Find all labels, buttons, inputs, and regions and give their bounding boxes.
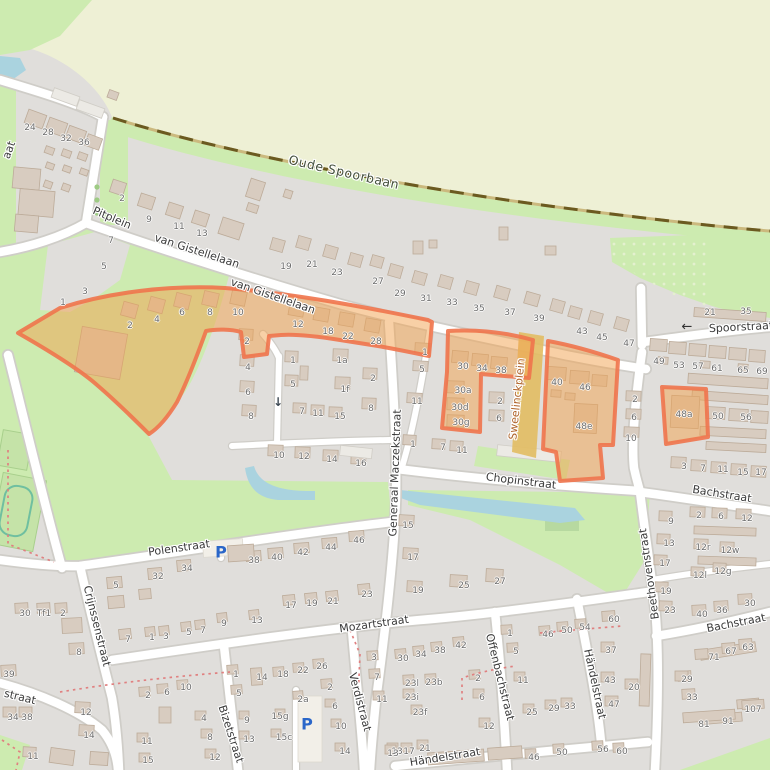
- street-label: Chopinstraat: [485, 470, 557, 492]
- house-number: 11: [717, 465, 728, 475]
- house-number: 12: [483, 722, 494, 732]
- parking-icon: P: [215, 543, 227, 562]
- house-number: 2: [244, 337, 250, 347]
- house-number: 35: [473, 304, 484, 314]
- house-number: 12: [209, 753, 220, 763]
- house-number: 47: [608, 700, 619, 710]
- house-number: 22: [297, 666, 308, 676]
- house-number: 12l: [693, 571, 707, 581]
- house-number: 25: [458, 581, 469, 591]
- house-number: 13: [243, 735, 254, 745]
- house-number: 23l: [405, 679, 419, 689]
- house-number: 15: [402, 521, 413, 531]
- house-number: 67: [725, 647, 736, 657]
- house-number: 38: [434, 646, 445, 656]
- house-number: 2: [327, 683, 333, 693]
- house-number: 17: [659, 559, 670, 569]
- house-number: 30: [744, 599, 755, 609]
- house-number: 36: [716, 606, 727, 616]
- house-number: 50: [712, 412, 723, 422]
- house-number: 20: [628, 683, 639, 693]
- house-number: 13: [251, 616, 262, 626]
- house-number: 7: [108, 236, 114, 246]
- house-number: 23: [664, 606, 675, 616]
- house-number: 39: [533, 314, 544, 324]
- street-label: Beethovenstraat: [636, 528, 662, 621]
- house-number: 10: [180, 683, 191, 693]
- house-number: 65: [737, 366, 748, 376]
- house-number: 11: [376, 695, 387, 705]
- house-number: 13: [196, 229, 207, 239]
- house-number: 19: [660, 587, 671, 597]
- house-number: 8: [207, 733, 213, 743]
- house-number: 12r: [695, 543, 710, 553]
- house-number: 46: [579, 383, 590, 393]
- house-number: 37: [605, 646, 616, 656]
- house-number: 12w: [721, 546, 740, 556]
- house-number: 30: [19, 609, 30, 619]
- house-number: 5: [290, 380, 296, 390]
- house-number: 35: [740, 307, 751, 317]
- house-number: 30: [457, 362, 468, 372]
- map-label-layer: Oude SpoorbaanPitpleinvan Gistellelaanva…: [0, 0, 770, 770]
- house-number: 22: [342, 332, 353, 342]
- house-number: 11: [312, 409, 323, 419]
- house-number: 11: [517, 676, 528, 686]
- house-number: 27: [494, 577, 505, 587]
- house-number: 33: [564, 702, 575, 712]
- street-label: Bachstraat: [692, 483, 753, 505]
- house-number: 39: [3, 670, 14, 680]
- house-number: 19: [280, 262, 291, 272]
- street-label: Oude Spoorbaan: [287, 152, 401, 192]
- house-number: 12: [741, 514, 752, 524]
- house-number: 42: [297, 548, 308, 558]
- house-number: 17: [285, 601, 296, 611]
- house-number: 46: [542, 630, 553, 640]
- house-number: 2: [370, 374, 376, 384]
- house-number: 11: [411, 397, 422, 407]
- house-number: 2: [119, 194, 125, 204]
- house-number: 21: [306, 260, 317, 270]
- house-number: 1: [410, 440, 416, 450]
- house-number: 11: [27, 752, 38, 762]
- street-label: Sweelinckplein: [506, 358, 527, 441]
- house-number: 12: [80, 708, 91, 718]
- house-number: 10: [625, 434, 636, 444]
- house-number: 16: [355, 459, 366, 469]
- house-number: 40: [271, 553, 282, 563]
- house-number: 63: [742, 643, 753, 653]
- house-number: 4: [154, 315, 160, 325]
- house-number: 17: [755, 468, 766, 478]
- house-number: 12: [292, 320, 303, 330]
- house-number: 29: [548, 704, 559, 714]
- house-number: 17: [403, 747, 414, 757]
- oneway-down-icon: ↓: [273, 395, 283, 409]
- house-number: 1: [60, 298, 66, 308]
- house-number: 38: [495, 366, 506, 376]
- house-number: 91: [722, 717, 733, 727]
- street-label: Pitplein: [91, 204, 133, 232]
- house-number: 29: [681, 675, 692, 685]
- street-label: aat: [0, 139, 18, 160]
- house-number: 2a: [297, 695, 308, 705]
- house-number: 15: [334, 412, 345, 422]
- house-number: 10: [232, 308, 243, 318]
- house-number: 3: [681, 462, 687, 472]
- house-number: 23f: [413, 708, 428, 718]
- house-number: 11: [456, 446, 467, 456]
- house-number: 29: [394, 289, 405, 299]
- street-label: Crijnssenstraat: [81, 584, 114, 668]
- house-number: 2: [60, 609, 66, 619]
- house-number: 6: [245, 388, 251, 398]
- house-number: 40: [696, 610, 707, 620]
- house-number: 14: [256, 673, 267, 683]
- house-number: 15: [737, 468, 748, 478]
- house-number: 19: [412, 586, 423, 596]
- house-number: 5: [101, 262, 107, 272]
- street-label: straat: [3, 687, 38, 707]
- house-number: 46: [353, 536, 364, 546]
- house-number: 6: [332, 702, 338, 712]
- house-number: Tf1: [37, 609, 51, 619]
- house-number: 19: [306, 599, 317, 609]
- house-number: 1: [422, 348, 428, 358]
- house-number: 81: [698, 720, 709, 730]
- house-number: 3: [371, 653, 377, 663]
- house-number: 53: [673, 361, 684, 371]
- street-label: Generaal Maczekstraat: [386, 409, 403, 537]
- house-number: 10: [335, 722, 346, 732]
- house-number: 107: [744, 705, 761, 715]
- house-number: 18: [322, 327, 333, 337]
- house-number: 56: [740, 413, 751, 423]
- house-number: 4: [201, 714, 207, 724]
- house-number: 1f: [341, 385, 350, 395]
- house-number: 1: [149, 633, 155, 643]
- house-number: 5: [113, 581, 119, 591]
- house-number: 24: [24, 123, 35, 133]
- house-number: 6: [164, 688, 170, 698]
- house-number: 30d: [451, 403, 468, 413]
- house-number: 34: [7, 713, 18, 723]
- house-number: 50: [556, 748, 567, 758]
- house-number: 46: [528, 753, 539, 763]
- house-number: 11: [173, 222, 184, 232]
- house-number: 17: [407, 553, 418, 563]
- house-number: 31: [420, 294, 431, 304]
- street-label: Polenstraat: [147, 537, 210, 559]
- house-number: 6: [718, 512, 724, 522]
- house-number: 3: [82, 287, 88, 297]
- house-number: 26: [316, 662, 327, 672]
- street-label: Verdistraat: [346, 671, 374, 732]
- house-number: 15g: [271, 712, 288, 722]
- house-number: 50: [561, 626, 572, 636]
- street-label: Mozartstraat: [338, 613, 409, 636]
- house-number: 1: [233, 670, 239, 680]
- house-number: 42: [455, 641, 466, 651]
- house-number: 47: [623, 339, 634, 349]
- house-number: 7: [200, 626, 206, 636]
- house-number: 7: [299, 407, 305, 417]
- house-number: 4: [245, 363, 251, 373]
- house-number: 38: [248, 556, 259, 566]
- house-number: 23: [331, 268, 342, 278]
- house-number: 9: [244, 716, 250, 726]
- house-number: 6: [179, 308, 185, 318]
- house-number: 7: [440, 443, 446, 453]
- house-number: 71: [708, 653, 719, 663]
- house-number: 5: [186, 628, 192, 638]
- house-number: 1: [507, 629, 513, 639]
- house-number: 34: [181, 564, 192, 574]
- house-number: 21: [704, 308, 715, 318]
- house-number: 14: [83, 731, 94, 741]
- house-number: 15: [142, 756, 153, 766]
- house-number: 28: [370, 337, 381, 347]
- house-number: 6: [479, 693, 485, 703]
- house-number: 12: [298, 452, 309, 462]
- house-number: 5: [236, 689, 242, 699]
- house-number: 5: [513, 647, 519, 657]
- house-number: 21: [419, 744, 430, 754]
- house-number: 13: [663, 539, 674, 549]
- house-number: 2: [696, 511, 702, 521]
- house-number: 6: [631, 413, 637, 423]
- house-number: 2: [127, 321, 133, 331]
- house-number: 7: [125, 635, 131, 645]
- oneway-left-icon: ←: [682, 320, 693, 335]
- house-number: 60: [616, 747, 627, 757]
- house-number: 28: [42, 128, 53, 138]
- house-number: 48a: [676, 410, 693, 420]
- house-number: 21: [327, 597, 338, 607]
- house-number: 1: [290, 356, 296, 366]
- house-number: 30a: [455, 386, 472, 396]
- house-number: 40: [551, 378, 562, 388]
- house-number: 2: [497, 397, 503, 407]
- house-number: 1a: [336, 356, 347, 366]
- house-number: 23b: [425, 678, 442, 688]
- house-number: 2: [145, 691, 151, 701]
- house-number: 49: [653, 357, 664, 367]
- house-number: 14: [339, 747, 350, 757]
- house-number: 69: [756, 367, 767, 377]
- house-number: 13: [387, 749, 398, 759]
- house-number: 32: [152, 572, 163, 582]
- house-number: 57: [692, 362, 703, 372]
- house-number: 9: [221, 619, 227, 629]
- house-number: 23i: [405, 693, 419, 703]
- house-number: 9: [146, 215, 152, 225]
- house-number: 23: [361, 590, 372, 600]
- house-number: 54: [579, 623, 590, 633]
- house-number: 2: [475, 674, 481, 684]
- house-number: 61: [711, 364, 722, 374]
- house-number: 36: [78, 138, 89, 148]
- house-number: 8: [368, 404, 374, 414]
- house-number: 60: [608, 615, 619, 625]
- house-number: 43: [604, 676, 615, 686]
- house-number: 25: [526, 708, 537, 718]
- street-label: Bachstraat: [705, 611, 766, 635]
- house-number: 15c: [276, 733, 292, 743]
- house-number: 5: [419, 365, 425, 375]
- house-number: 27: [372, 277, 383, 287]
- house-number: 30g: [452, 418, 469, 428]
- house-number: 34: [415, 650, 426, 660]
- house-number: 8: [76, 648, 82, 658]
- map-canvas[interactable]: Oude SpoorbaanPitpleinvan Gistellelaanva…: [0, 0, 770, 770]
- house-number: 56: [597, 745, 608, 755]
- house-number: 9: [668, 517, 674, 527]
- house-number: 34: [476, 364, 487, 374]
- house-number: 38: [21, 713, 32, 723]
- street-label: Spoorstraat: [709, 319, 770, 335]
- house-number: 7: [700, 464, 706, 474]
- house-number: 11: [141, 737, 152, 747]
- house-number: 8: [207, 308, 213, 318]
- street-label: Offenbachstraat: [483, 632, 517, 722]
- house-number: 6: [496, 414, 502, 424]
- house-number: 7: [374, 673, 380, 683]
- house-number: 12g: [714, 567, 731, 577]
- house-number: 43: [576, 327, 587, 337]
- house-number: 37: [504, 308, 515, 318]
- house-number: 2: [632, 395, 638, 405]
- house-number: 33: [446, 298, 457, 308]
- house-number: 18: [277, 670, 288, 680]
- house-number: 33: [686, 693, 697, 703]
- house-number: 44: [325, 543, 336, 553]
- parking-icon: P: [301, 715, 313, 734]
- house-number: 8: [248, 412, 254, 422]
- house-number: 10: [273, 451, 284, 461]
- house-number: 45: [596, 333, 607, 343]
- house-number: 48e: [576, 422, 593, 432]
- house-number: 3: [163, 632, 169, 642]
- house-number: 14: [326, 455, 337, 465]
- house-number: 32: [60, 134, 71, 144]
- house-number: 30: [397, 654, 408, 664]
